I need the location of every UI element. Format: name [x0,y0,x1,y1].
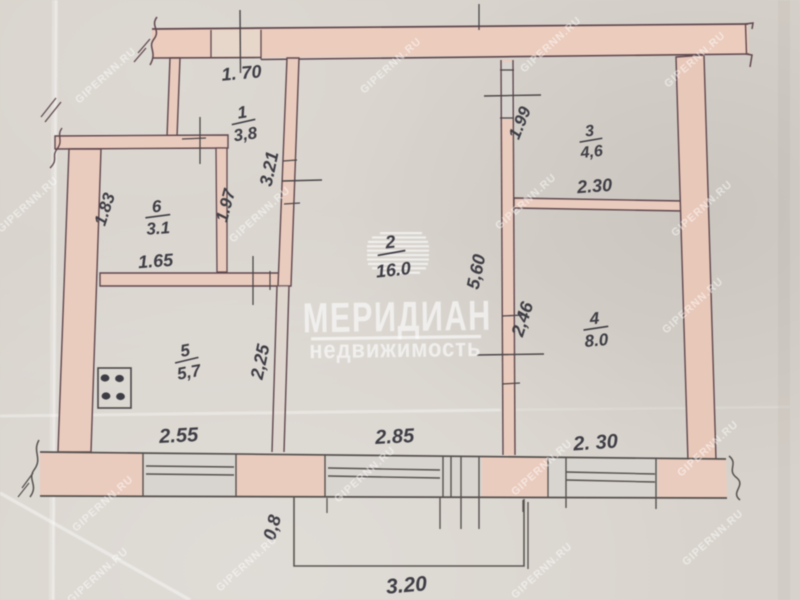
svg-text:2. 30: 2. 30 [572,430,619,455]
svg-text:2.30: 2.30 [575,175,612,197]
svg-text:8.0: 8.0 [584,330,610,351]
svg-text:4,6: 4,6 [579,143,604,162]
svg-text:2.85: 2.85 [374,425,416,449]
svg-text:3.20: 3.20 [385,572,428,599]
svg-text:6: 6 [151,197,162,217]
svg-text:3: 3 [584,123,595,141]
svg-text:3.1: 3.1 [146,218,171,239]
svg-text:2: 2 [383,232,396,253]
svg-text:1.65: 1.65 [137,250,174,272]
svg-text:недвижимость: недвижимость [309,334,481,364]
svg-text:3,8: 3,8 [232,123,259,145]
svg-text:16.0: 16.0 [375,258,412,282]
svg-text:1. 70: 1. 70 [221,61,263,84]
svg-text:2.55: 2.55 [158,424,200,448]
